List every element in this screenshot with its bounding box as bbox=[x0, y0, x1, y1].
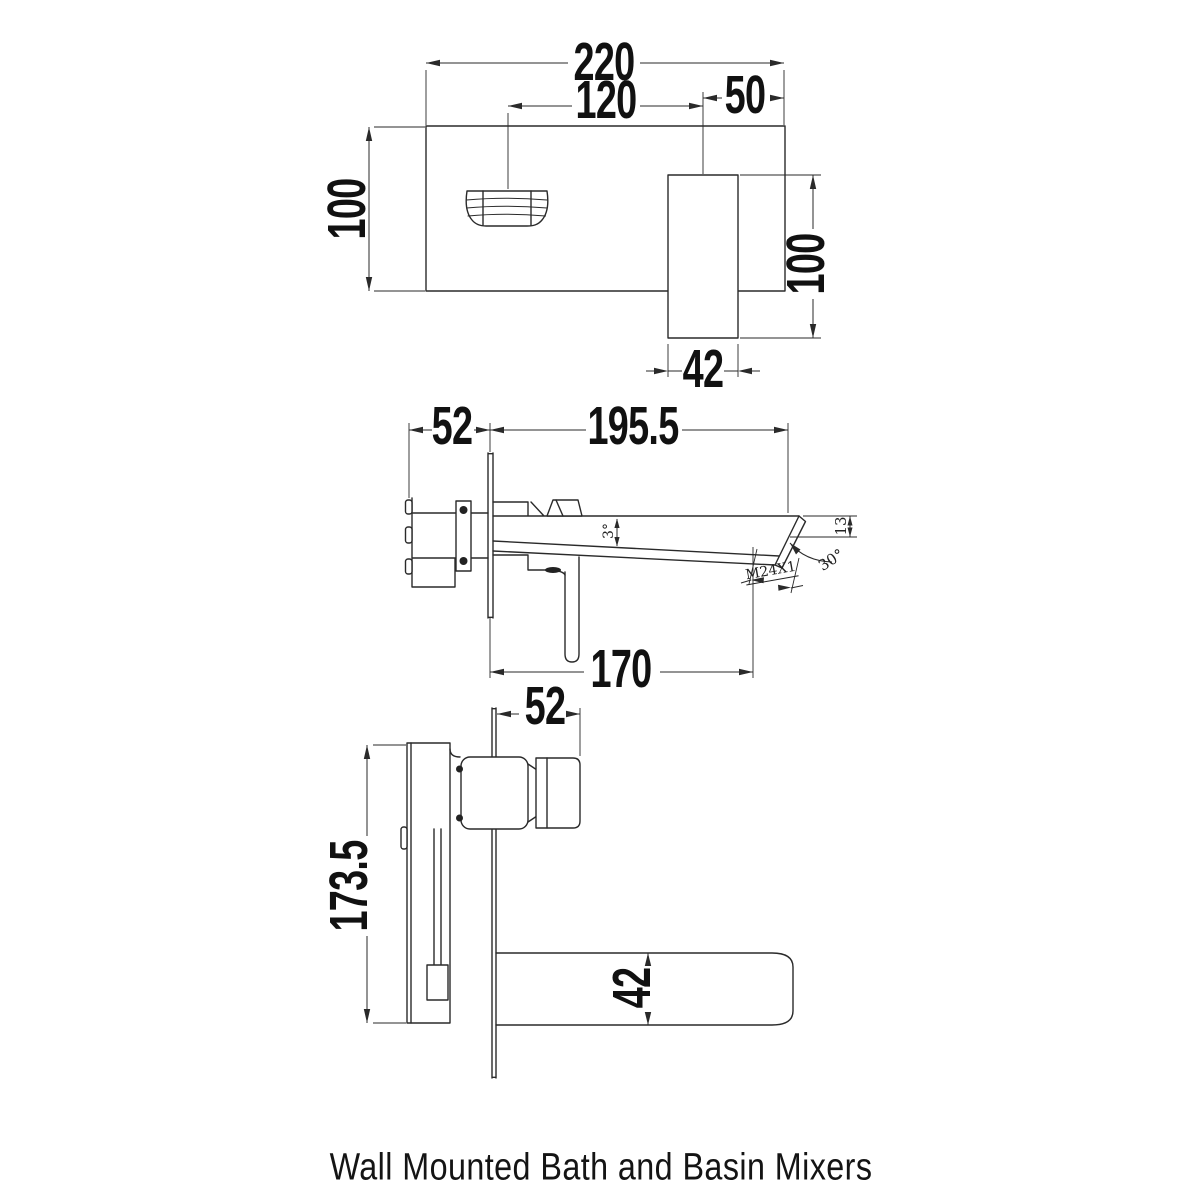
dim-label-body-height: 173.5 bbox=[318, 840, 380, 931]
side-view-linework bbox=[406, 453, 806, 662]
set-screw bbox=[545, 567, 561, 573]
dim-label-wall-depth: 52 bbox=[432, 395, 473, 457]
cartridge-housing bbox=[461, 757, 528, 829]
dim-label-plate-height: 100 bbox=[316, 179, 378, 240]
handle-front bbox=[668, 175, 738, 338]
dim-label-taper-angle: 3° bbox=[601, 523, 617, 539]
dim-label-handle-length: 100 bbox=[775, 234, 837, 295]
flange-nut-bottom bbox=[460, 557, 468, 565]
dim-label-spout-center: 120 bbox=[576, 69, 637, 131]
plan-view-linework bbox=[401, 708, 793, 1078]
front-view-linework bbox=[426, 126, 785, 338]
pipe-foot bbox=[427, 965, 448, 1000]
housing-lug-bottom bbox=[456, 815, 463, 822]
spout-front-outline bbox=[466, 191, 548, 226]
valve-tab-1 bbox=[406, 500, 413, 514]
concealed-valve-body bbox=[412, 498, 488, 587]
body-corner bbox=[450, 749, 460, 757]
dim-label-spout-length: 170 bbox=[591, 638, 652, 700]
drawing-sheet: 220 120 50 100 100 42 52 195.5 170 3° 13… bbox=[0, 0, 1200, 1200]
flange-nut-top bbox=[460, 506, 468, 514]
dim-label-handle-offset: 50 bbox=[725, 64, 766, 126]
lever-handle-side bbox=[565, 557, 579, 662]
drawing-caption: Wall Mounted Bath and Basin Mixers bbox=[330, 1147, 873, 1190]
lever-top-side bbox=[547, 500, 582, 516]
valve-tab-3 bbox=[406, 559, 413, 574]
housing-lug-top bbox=[456, 766, 463, 773]
body-tab bbox=[401, 827, 407, 849]
wall-plate-edge bbox=[488, 453, 493, 618]
technical-drawing bbox=[0, 0, 1200, 1200]
dim-label-spout-width: 42 bbox=[601, 968, 663, 1009]
dim-label-tip-height: 13 bbox=[832, 516, 850, 535]
valve-tab-2 bbox=[406, 527, 413, 543]
handle-block-plan bbox=[536, 758, 580, 828]
dim-label-projection-depth: 52 bbox=[525, 675, 566, 737]
dim-label-handle-width: 42 bbox=[683, 338, 724, 400]
dim-label-spout-reach: 195.5 bbox=[587, 395, 678, 457]
